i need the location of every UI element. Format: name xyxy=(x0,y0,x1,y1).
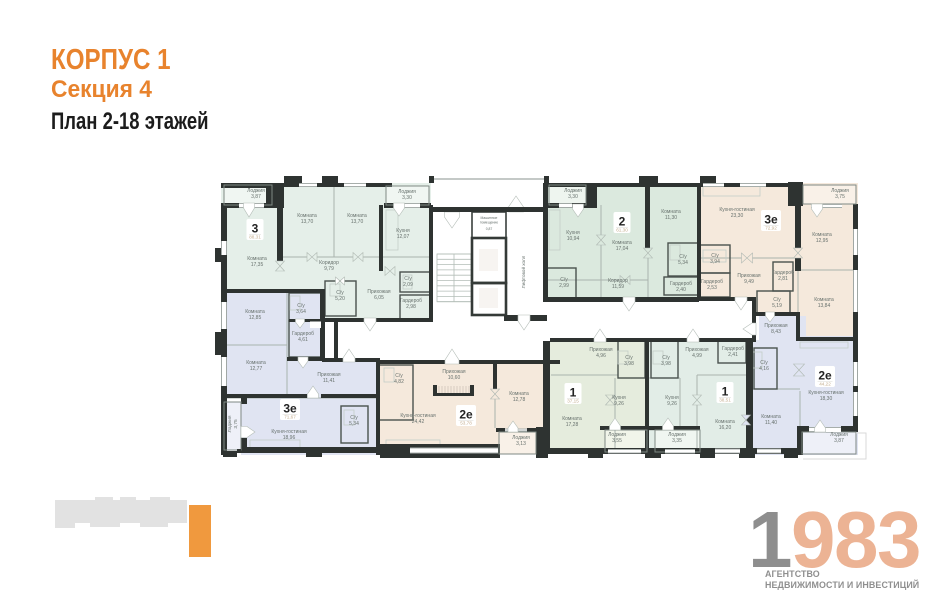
svg-text:Лоджия: Лоджия xyxy=(830,432,848,438)
svg-text:Прихожая: Прихожая xyxy=(764,323,787,329)
svg-text:Гардероб: Гардероб xyxy=(772,270,794,276)
svg-text:С/у: С/у xyxy=(679,254,687,260)
svg-text:С/у: С/у xyxy=(773,297,781,303)
svg-text:11,59: 11,59 xyxy=(612,284,624,290)
svg-text:С/у: С/у xyxy=(662,355,670,361)
svg-text:С/у: С/у xyxy=(395,373,403,379)
svg-text:12,85: 12,85 xyxy=(249,315,262,321)
svg-text:2,09: 2,09 xyxy=(403,282,413,288)
svg-text:Комната: Комната xyxy=(562,416,582,422)
svg-text:13,70: 13,70 xyxy=(301,219,314,225)
svg-text:Гардероб: Гардероб xyxy=(722,346,744,352)
svg-text:Прихожая: Прихожая xyxy=(367,289,390,295)
svg-text:Комната: Комната xyxy=(245,309,265,315)
svg-text:5,34: 5,34 xyxy=(678,260,688,266)
svg-text:44,22: 44,22 xyxy=(819,382,831,387)
svg-text:3,30: 3,30 xyxy=(402,195,412,201)
svg-text:5,34: 5,34 xyxy=(349,421,359,427)
svg-text:5,19: 5,19 xyxy=(772,303,782,309)
svg-text:Лоджия: Лоджия xyxy=(668,432,686,438)
svg-text:Комната: Комната xyxy=(661,209,681,215)
svg-text:Комната: Комната xyxy=(612,240,632,246)
svg-text:Лоджия: Лоджия xyxy=(512,435,530,441)
svg-text:2,53: 2,53 xyxy=(707,285,717,291)
svg-text:53,78: 53,78 xyxy=(460,421,472,426)
svg-text:17,35: 17,35 xyxy=(251,262,264,268)
svg-text:Прихожая: Прихожая xyxy=(589,347,612,353)
svg-text:Комната: Комната xyxy=(715,419,735,425)
svg-text:17,04: 17,04 xyxy=(616,246,629,252)
svg-text:Машинное: Машинное xyxy=(481,216,498,220)
svg-text:11,40: 11,40 xyxy=(765,420,777,426)
svg-text:Комната: Комната xyxy=(246,360,266,366)
svg-text:Лоджия: Лоджия xyxy=(831,188,849,194)
svg-text:Лифтовой холл: Лифтовой холл xyxy=(520,255,526,288)
svg-text:Комната: Комната xyxy=(761,414,781,420)
svg-text:Комната: Комната xyxy=(297,213,317,219)
svg-text:Коридор: Коридор xyxy=(319,260,339,266)
svg-text:2е: 2е xyxy=(818,369,832,383)
svg-text:3: 3 xyxy=(252,222,259,236)
svg-text:3,87: 3,87 xyxy=(834,438,844,444)
svg-text:Комната: Комната xyxy=(347,213,367,219)
svg-text:Гардероб: Гардероб xyxy=(400,298,422,304)
svg-text:12,95: 12,95 xyxy=(816,238,829,244)
svg-text:9,79: 9,79 xyxy=(324,266,334,272)
svg-text:С/у: С/у xyxy=(404,276,412,282)
svg-text:4,82: 4,82 xyxy=(394,379,404,385)
svg-text:3,94: 3,94 xyxy=(710,259,720,265)
svg-text:5,20: 5,20 xyxy=(335,296,345,302)
svg-text:С/у: С/у xyxy=(560,277,568,283)
svg-text:38,51: 38,51 xyxy=(719,398,731,403)
svg-text:4,61: 4,61 xyxy=(298,337,308,343)
svg-text:6,05: 6,05 xyxy=(374,295,384,301)
svg-text:11,41: 11,41 xyxy=(323,378,335,384)
svg-text:16,20: 16,20 xyxy=(719,425,732,431)
svg-text:12,78: 12,78 xyxy=(513,397,526,403)
svg-text:3,64: 3,64 xyxy=(296,309,306,315)
svg-text:Прихожая: Прихожая xyxy=(737,273,760,279)
svg-text:8,43: 8,43 xyxy=(771,329,781,335)
svg-text:23,30: 23,30 xyxy=(731,213,744,219)
svg-text:2,40: 2,40 xyxy=(676,287,686,293)
svg-text:С/у: С/у xyxy=(336,290,344,296)
svg-text:Прихожая: Прихожая xyxy=(317,372,340,378)
svg-text:Кухня: Кухня xyxy=(612,395,626,401)
svg-text:С/у: С/у xyxy=(297,303,305,309)
svg-text:С/у: С/у xyxy=(760,360,768,366)
svg-text:11,30: 11,30 xyxy=(665,215,677,221)
svg-text:Комната: Комната xyxy=(247,256,267,262)
svg-text:Кухня-гостиная: Кухня-гостиная xyxy=(400,413,436,419)
svg-text:18,96: 18,96 xyxy=(283,435,296,441)
svg-text:С/у: С/у xyxy=(711,253,719,259)
svg-text:Лоджия: Лоджия xyxy=(247,188,265,194)
svg-text:13,84: 13,84 xyxy=(818,303,831,309)
svg-text:13,70: 13,70 xyxy=(351,219,364,225)
svg-text:3,35: 3,35 xyxy=(672,438,682,444)
svg-text:1: 1 xyxy=(570,386,577,400)
svg-text:0,87: 0,87 xyxy=(486,227,493,231)
svg-text:Кухня: Кухня xyxy=(396,228,410,234)
svg-text:3,75: 3,75 xyxy=(233,419,239,429)
svg-text:помещение: помещение xyxy=(480,220,498,224)
svg-text:3,98: 3,98 xyxy=(624,361,634,367)
svg-text:Лоджия: Лоджия xyxy=(398,189,416,195)
svg-text:12,77: 12,77 xyxy=(250,366,263,372)
svg-text:Коридор: Коридор xyxy=(608,278,628,284)
svg-text:1: 1 xyxy=(722,385,729,399)
svg-text:37,15: 37,15 xyxy=(567,399,579,404)
svg-text:С/у: С/у xyxy=(625,355,633,361)
svg-text:17,28: 17,28 xyxy=(566,422,579,428)
svg-text:Кухня-гостиная: Кухня-гостиная xyxy=(808,390,844,396)
svg-text:Лоджия: Лоджия xyxy=(608,432,626,438)
svg-text:18,30: 18,30 xyxy=(820,396,833,402)
svg-text:Кухня: Кухня xyxy=(566,230,580,236)
svg-text:Кухня-гостиная: Кухня-гостиная xyxy=(271,429,307,435)
svg-text:Гардероб: Гардероб xyxy=(701,279,723,285)
svg-text:Лоджия: Лоджия xyxy=(564,188,582,194)
svg-text:3,98: 3,98 xyxy=(661,361,671,367)
svg-text:9,26: 9,26 xyxy=(667,401,677,407)
svg-text:2,81: 2,81 xyxy=(778,276,788,282)
svg-text:3е: 3е xyxy=(764,213,778,227)
svg-text:3,75: 3,75 xyxy=(835,194,845,200)
svg-text:Прихожая: Прихожая xyxy=(685,347,708,353)
svg-text:4,16: 4,16 xyxy=(759,366,769,372)
svg-text:2,41: 2,41 xyxy=(728,352,738,358)
svg-text:3,87: 3,87 xyxy=(251,194,261,200)
svg-text:2,99: 2,99 xyxy=(559,283,569,289)
svg-text:24,42: 24,42 xyxy=(412,419,425,425)
svg-text:Гардероб: Гардероб xyxy=(670,281,692,287)
svg-text:71,67: 71,67 xyxy=(284,415,296,420)
svg-text:3,13: 3,13 xyxy=(516,441,526,447)
svg-text:3,55: 3,55 xyxy=(612,438,622,444)
svg-text:Прихожая: Прихожая xyxy=(442,369,465,375)
svg-text:2е: 2е xyxy=(459,408,473,422)
svg-text:9,26: 9,26 xyxy=(614,401,624,407)
svg-text:4,99: 4,99 xyxy=(692,353,702,359)
svg-text:72,92: 72,92 xyxy=(765,226,777,231)
svg-text:9,49: 9,49 xyxy=(744,279,754,285)
svg-text:Комната: Комната xyxy=(812,232,832,238)
svg-text:10,94: 10,94 xyxy=(567,236,580,242)
svg-text:Кухня-гостиная: Кухня-гостиная xyxy=(719,207,755,213)
svg-text:88,31: 88,31 xyxy=(249,235,261,240)
svg-text:2,98: 2,98 xyxy=(406,304,416,310)
svg-text:3,30: 3,30 xyxy=(568,194,578,200)
svg-text:Гардероб: Гардероб xyxy=(292,331,314,337)
svg-text:2: 2 xyxy=(619,215,626,229)
svg-text:4,96: 4,96 xyxy=(596,353,606,359)
svg-text:3е: 3е xyxy=(283,402,297,416)
svg-text:Комната: Комната xyxy=(509,391,529,397)
svg-text:Кухня: Кухня xyxy=(665,395,679,401)
svg-text:Комната: Комната xyxy=(814,297,834,303)
svg-text:12,07: 12,07 xyxy=(397,234,410,240)
svg-text:10,60: 10,60 xyxy=(448,375,461,381)
svg-text:С/у: С/у xyxy=(350,415,358,421)
svg-text:61,30: 61,30 xyxy=(616,228,628,233)
svg-text:Лоджия: Лоджия xyxy=(227,415,233,432)
